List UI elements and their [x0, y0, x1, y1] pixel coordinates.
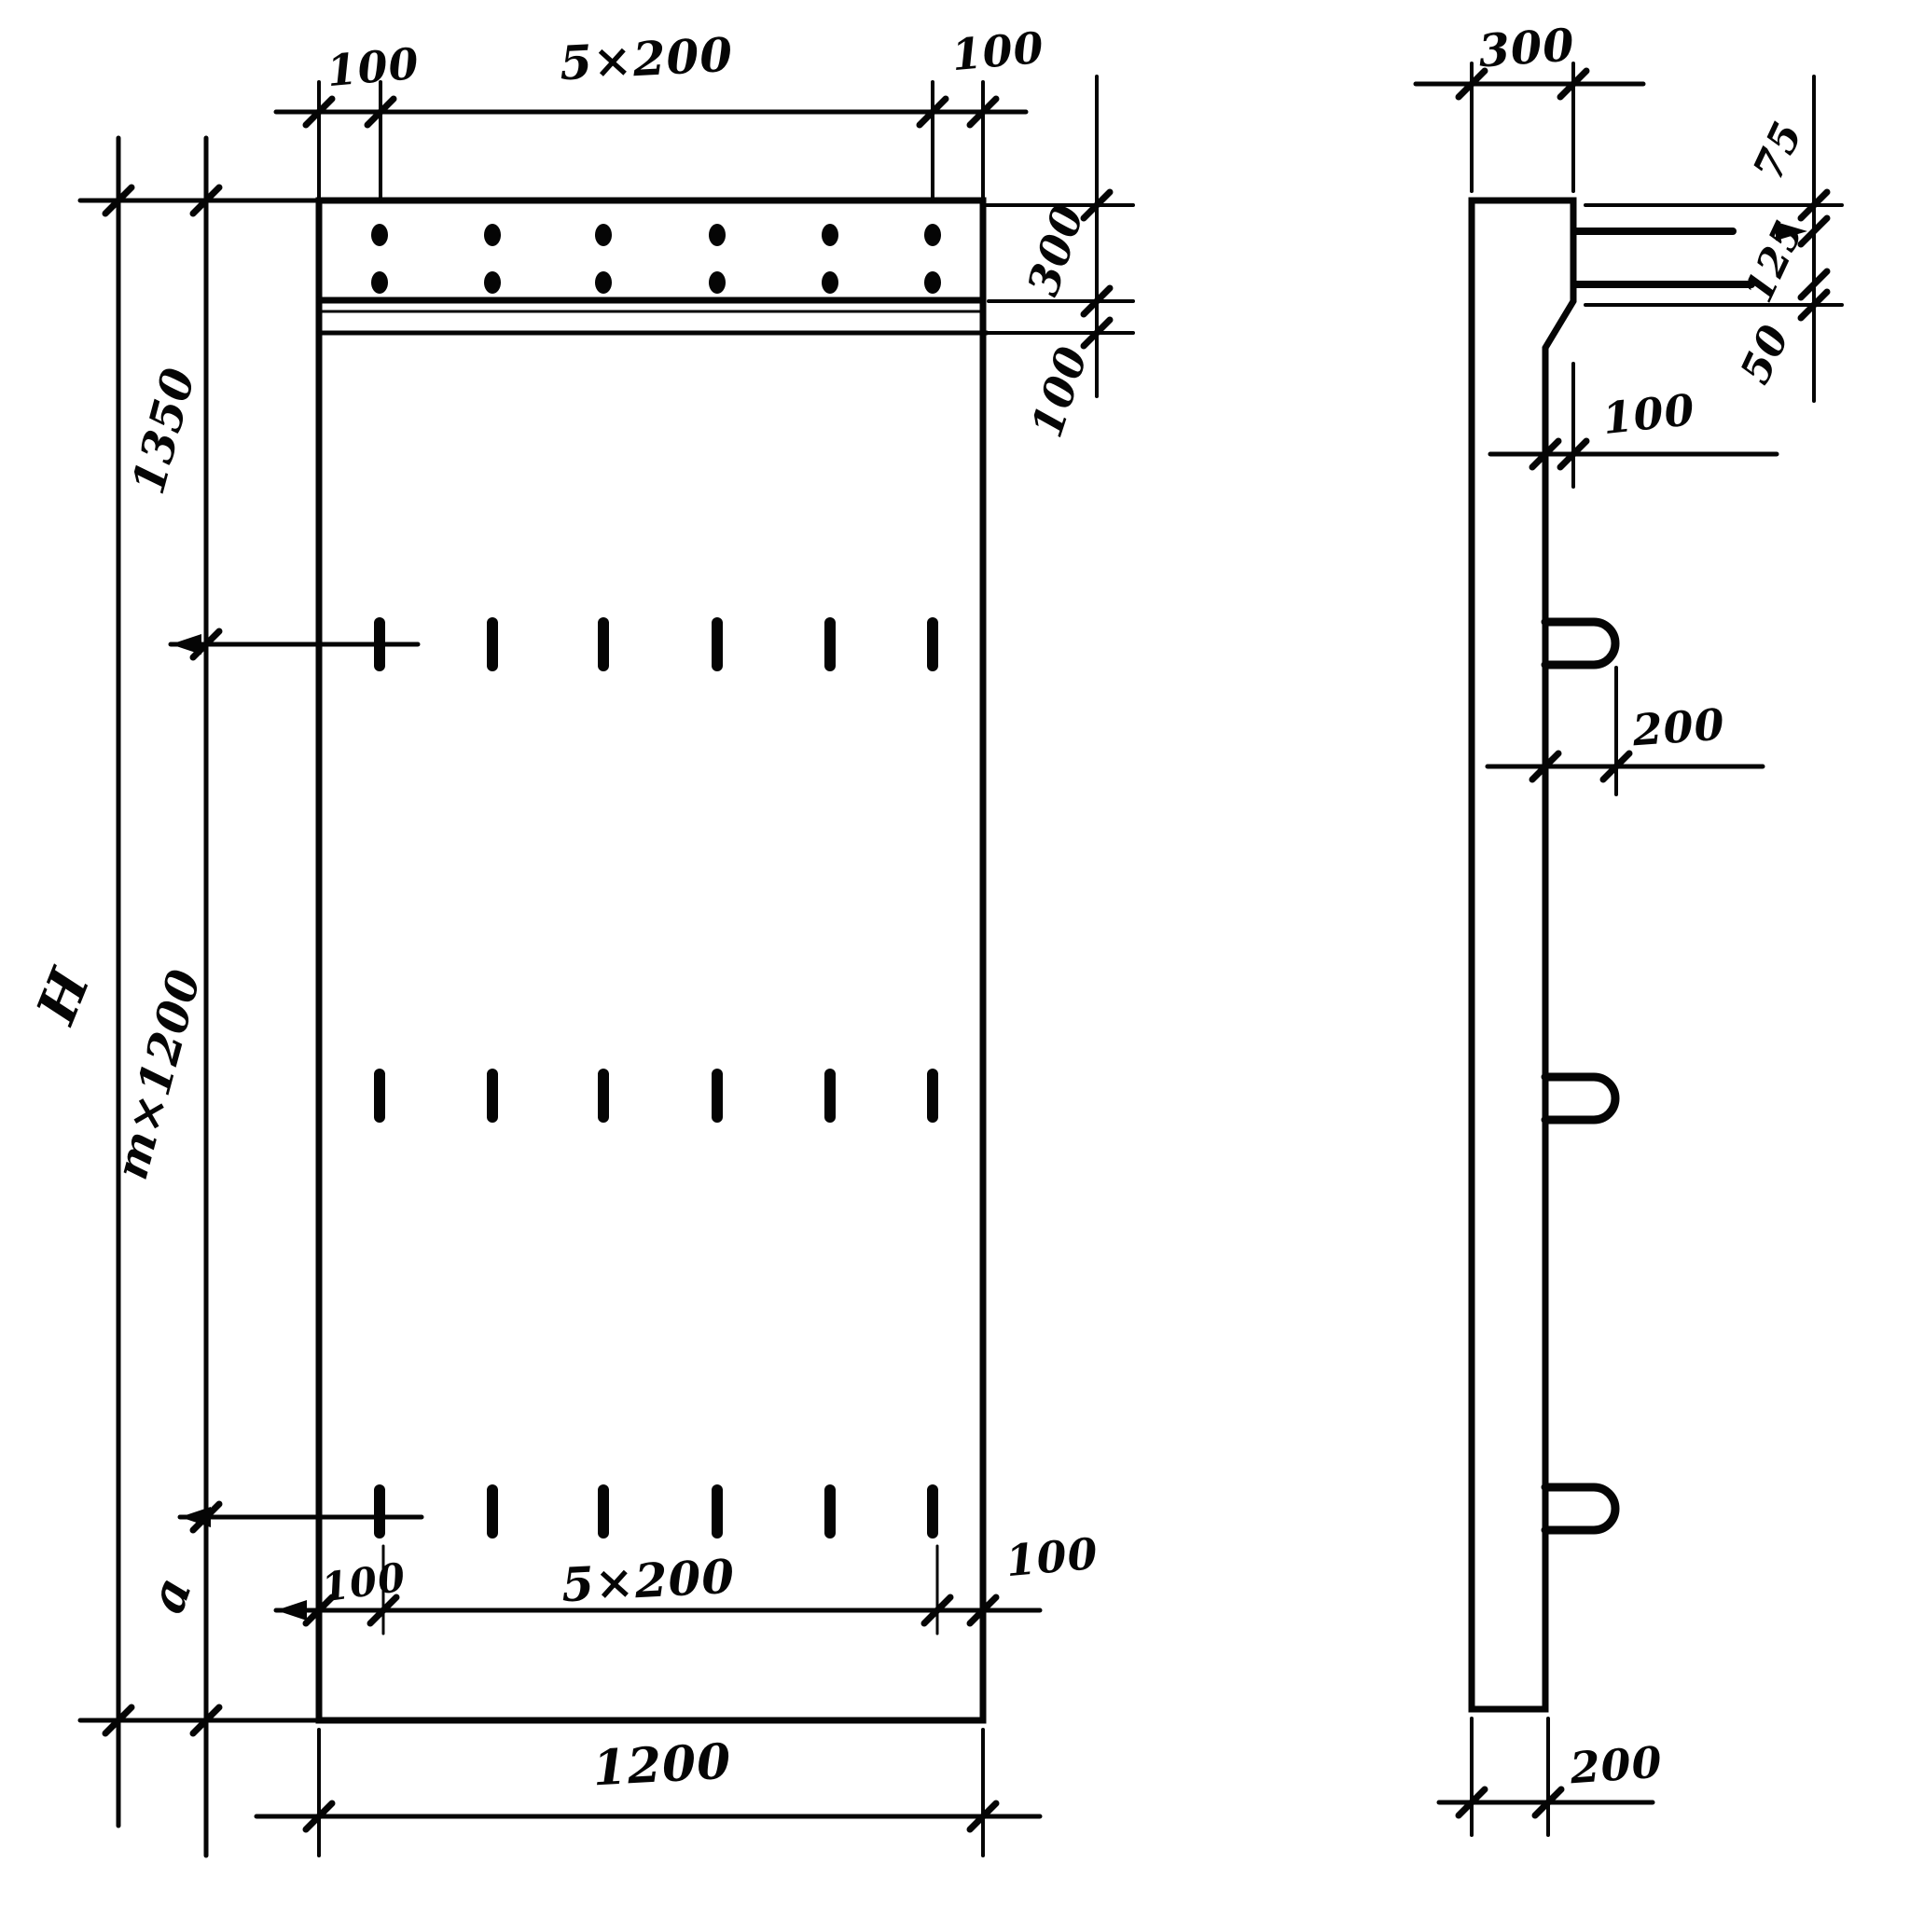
dim-label-side-top-thickness: 300 — [1477, 19, 1577, 77]
side-top-dimension — [1416, 63, 1643, 191]
panel-outline — [319, 200, 983, 1720]
cap-band-lines — [319, 300, 987, 333]
dim-label-front-overall-width: 1200 — [591, 1733, 733, 1798]
dim-label-front-top-spacing: 5×200 — [559, 27, 735, 91]
dim-label-side-step-offset: 100 — [1600, 384, 1697, 444]
technical-drawing-sheet: 100 5×200 100 300 100 1350 m×1200 a H 10… — [0, 0, 1910, 1932]
front-top-dimension — [276, 82, 1026, 200]
dim-label-side-loop-protrusion: 200 — [1631, 699, 1727, 756]
dim-label-front-top-left-margin: 100 — [325, 38, 421, 96]
tie-row-3 — [374, 1484, 938, 1539]
dim-label-front-bottom-tie-right-margin: 100 — [1003, 1528, 1100, 1586]
dim-label-side-bottom-thickness: 200 — [1569, 1737, 1665, 1794]
dim-label-front-top-right-margin: 100 — [949, 22, 1045, 80]
tie-row-1 — [374, 617, 938, 671]
tie-row-2 — [374, 1069, 938, 1123]
panel-profile-outline — [1472, 200, 1573, 1709]
dim-label-front-bottom-tie-spacing: 5×200 — [561, 1549, 737, 1613]
anchor-dot-grid — [371, 224, 941, 294]
drawing-linework — [0, 0, 1910, 1932]
